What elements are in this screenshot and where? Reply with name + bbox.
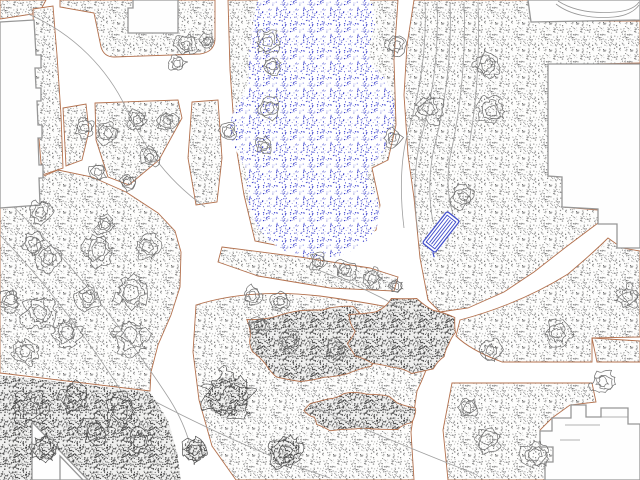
site-plan-viewport[interactable] <box>0 0 640 480</box>
planting-bed-bed-b <box>95 100 182 185</box>
building-north <box>128 0 178 33</box>
dense-tree-fill <box>206 377 250 418</box>
planting-bed-se-strip <box>592 338 640 362</box>
dense-tree-fill <box>127 430 153 454</box>
tree-icon <box>168 55 188 70</box>
planting-bed-bed-c <box>188 100 222 205</box>
pond <box>230 0 394 258</box>
site-plan-canvas[interactable] <box>0 0 640 480</box>
dense-tree-fill <box>269 438 300 467</box>
planting-bed-bed-a <box>63 104 89 166</box>
dense-tree-fill <box>14 394 45 423</box>
